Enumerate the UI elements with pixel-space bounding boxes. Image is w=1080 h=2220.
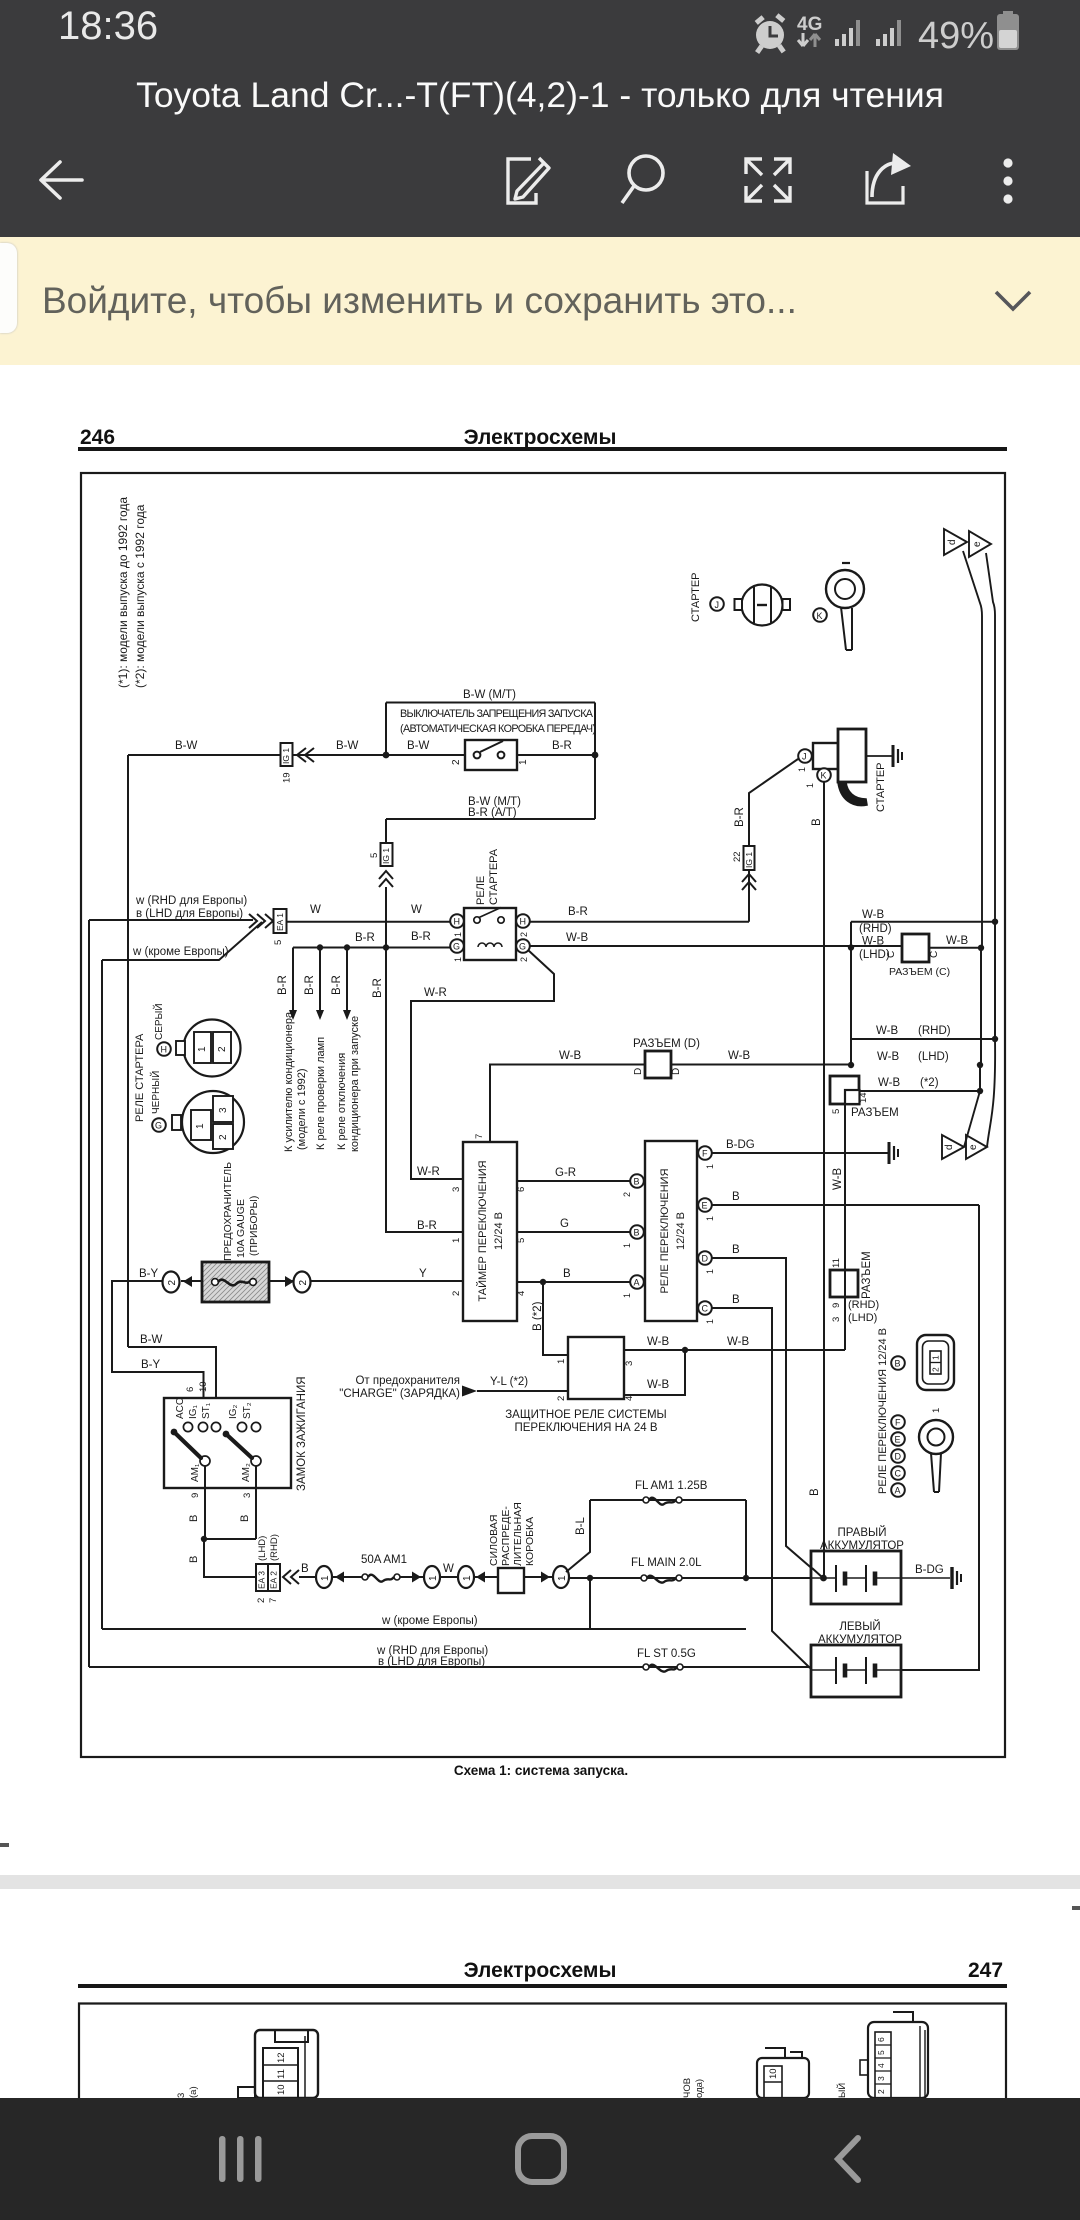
svg-text:B: B [809,1488,821,1496]
svg-text:2: 2 [622,1192,632,1197]
svg-text:9: 9 [831,1303,842,1308]
svg-text:G: G [453,942,460,952]
svg-text:5: 5 [876,2050,886,2055]
svg-text:B: B [732,1294,740,1306]
svg-text:1: 1 [453,932,463,937]
svg-text:(LHD): (LHD) [848,1312,877,1324]
svg-text:W-B: W-B [832,1168,844,1190]
svg-text:РАЗЪЕМ (D): РАЗЪЕМ (D) [633,1038,700,1050]
svg-text:B-Y: B-Y [141,1359,161,1371]
svg-text:ВЫКЛЮЧАТЕЛЬ ЗАПРЕЩЕНИЯ ЗАПУСКА: ВЫКЛЮЧАТЕЛЬ ЗАПРЕЩЕНИЯ ЗАПУСКА [400,708,594,720]
svg-text:1: 1 [705,1216,715,1221]
svg-text:J: J [715,600,720,610]
svg-text:1: 1 [622,1293,632,1298]
svg-text:B: B [634,1177,640,1187]
svg-text:B-R: B-R [568,906,588,918]
svg-text:ЫЙ: ЫЙ [836,2083,848,2098]
svg-text:FL AM1 1.25B: FL AM1 1.25B [635,1480,708,1492]
svg-text:B-W: B-W [336,740,359,752]
svg-text:B-R: B-R [304,975,316,995]
svg-text:B-W (M/T): B-W (M/T) [463,689,516,701]
svg-text:ST₂: ST₂ [242,1402,253,1419]
svg-text:B: B [895,1359,901,1369]
svg-text:2: 2 [298,1280,309,1286]
svg-text:3: 3 [831,1317,842,1322]
svg-text:11: 11 [276,2069,287,2079]
svg-text:5: 5 [369,853,380,858]
svg-text:K: K [821,771,827,781]
svg-text:СТАРТЕРА: СТАРТЕРА [488,848,500,905]
svg-text:IG 1: IG 1 [744,852,754,868]
svg-text:(RHD): (RHD) [859,923,892,935]
svg-text:6: 6 [185,1387,196,1392]
svg-text:d: d [944,1144,955,1150]
svg-text:От предохранителя: От предохранителя [355,1375,460,1387]
svg-text:12/24 В: 12/24 В [493,1212,505,1250]
svg-text:6: 6 [516,1187,527,1192]
svg-text:E: E [702,1201,708,1211]
svg-text:B-Y: B-Y [139,1268,159,1280]
svg-text:1: 1 [462,1575,473,1581]
svg-text:К усилителю кондиционера: К усилителю кондиционера [283,1011,295,1152]
svg-text:W-B: W-B [876,1025,898,1037]
svg-text:ST₁: ST₁ [201,1402,212,1419]
svg-text:К реле отключения: К реле отключения [336,1053,348,1150]
svg-text:РАСПРЕДЕ-: РАСПРЕДЕ- [500,1506,512,1566]
svg-text:в (LHD для Европы): в (LHD для Европы) [378,1656,485,1668]
svg-text:1: 1 [705,1164,715,1169]
svg-text:C: C [702,1304,709,1314]
svg-text:G: G [519,942,526,952]
svg-text:7: 7 [474,1134,485,1139]
svg-text:1: 1 [705,1319,715,1324]
svg-text:К реле проверки ламп: К реле проверки ламп [315,1037,327,1150]
svg-text:H: H [520,917,527,927]
svg-text:2: 2 [218,1134,229,1140]
svg-text:(RHD): (RHD) [918,1025,951,1037]
svg-text:B-L: B-L [575,1517,587,1536]
svg-text:W-B: W-B [559,1050,581,1062]
svg-text:W-B: W-B [877,1051,899,1063]
svg-text:10: 10 [276,2084,287,2095]
svg-text:(*1): модели выпуска до 1992 г: (*1): модели выпуска до 1992 года [116,497,130,688]
svg-text:4: 4 [516,1291,527,1296]
svg-text:B: B [732,1244,740,1256]
svg-text:ACC: ACC [175,1398,186,1419]
svg-text:10: 10 [198,1381,209,1392]
svg-text:D: D [702,1254,709,1264]
svg-text:B: B [732,1191,740,1203]
svg-text:EA 1: EA 1 [275,913,285,931]
svg-text:W-R: W-R [417,1166,440,1178]
svg-text:1: 1 [197,1046,208,1052]
svg-text:2: 2 [451,1291,462,1296]
svg-text:IG₂: IG₂ [228,1404,239,1419]
svg-text:1: 1 [622,1243,632,1248]
svg-text:ТАЙМЕР ПЕРЕКЛЮЧЕНИЯ: ТАЙМЕР ПЕРЕКЛЮЧЕНИЯ [476,1160,489,1301]
svg-text:W-B: W-B [878,1077,900,1089]
svg-text:A: A [634,1278,640,1288]
svg-text:1: 1 [428,1575,439,1581]
svg-text:W-B: W-B [566,932,588,944]
svg-text:B-W: B-W [407,740,430,752]
svg-text:РЕЛЕ ПЕРЕКЛЮЧЕНИЯ: РЕЛЕ ПЕРЕКЛЮЧЕНИЯ [659,1168,671,1293]
svg-text:СТАРТЕР: СТАРТЕР [690,572,702,622]
svg-text:6: 6 [876,2037,886,2042]
svg-text:ПРАВЫЙ: ПРАВЫЙ [838,1526,887,1539]
svg-text:СТАРТЕР: СТАРТЕР [875,762,887,812]
svg-text:B (*2): B (*2) [532,1301,544,1331]
svg-text:11: 11 [831,1258,842,1268]
svg-text:B: B [188,1556,200,1563]
svg-text:3: 3 [242,1493,253,1498]
svg-text:(LHD): (LHD) [859,949,890,961]
svg-text:ЛИТЕЛЬНАЯ: ЛИТЕЛЬНАЯ [512,1502,524,1566]
svg-text:КОРОБКА: КОРОБКА [524,1517,536,1566]
svg-text:2: 2 [451,759,462,765]
svg-text:W: W [411,904,422,916]
svg-text:3: 3 [451,1187,462,1192]
svg-text:AM₁: AM₁ [190,1463,201,1482]
svg-text:5: 5 [273,940,284,945]
svg-text:B-W: B-W [175,740,198,752]
svg-text:12/24 В: 12/24 В [675,1212,687,1250]
svg-text:e: e [968,1144,979,1150]
svg-text:14: 14 [858,1092,869,1103]
svg-text:(модели с 1992): (модели с 1992) [296,1068,308,1150]
svg-text:ЧОВ: ЧОВ [682,2078,693,2098]
svg-text:ЛЕВЫЙ: ЛЕВЫЙ [839,1620,880,1633]
svg-text:в (LHD для Европы): в (LHD для Европы) [136,908,243,920]
svg-text:W-B: W-B [946,935,968,947]
svg-text:1: 1 [931,1355,941,1360]
svg-text:D: D [895,1452,902,1462]
svg-text:РАЗЪЕМ (С): РАЗЪЕМ (С) [889,966,950,978]
svg-text:IG₁: IG₁ [188,1404,199,1419]
svg-text:W-B: W-B [728,1050,750,1062]
svg-text:ода): ода) [694,2079,705,2098]
svg-text:7: 7 [268,1598,279,1603]
svg-text:B-R: B-R [277,975,289,995]
svg-text:1: 1 [453,957,463,962]
svg-text:1: 1 [805,783,815,788]
svg-text:B-R: B-R [331,975,343,995]
svg-text:AM₂: AM₂ [241,1463,252,1482]
svg-text:5: 5 [831,1109,842,1114]
svg-text:C: C [929,951,940,958]
svg-text:G-R: G-R [555,1167,576,1179]
svg-text:W-B: W-B [647,1379,669,1391]
svg-text:2: 2 [167,1280,178,1286]
svg-text:(RHD): (RHD) [269,1534,280,1561]
svg-text:W-B: W-B [727,1336,749,1348]
svg-text:ЗАМОК ЗАЖИГАНИЯ: ЗАМОК ЗАЖИГАНИЯ [296,1376,308,1491]
svg-text:СИЛОВАЯ: СИЛОВАЯ [488,1515,500,1566]
svg-text:w (кроме Европы): w (кроме Европы) [132,946,229,958]
svg-text:ЧЕРНЫЙ: ЧЕРНЫЙ [149,1071,162,1114]
svg-text:FL MAIN 2.0L: FL MAIN 2.0L [631,1557,702,1569]
svg-text:K: K [817,611,823,621]
svg-text:СЕРЫЙ: СЕРЫЙ [152,1003,165,1040]
svg-text:H: H [454,917,461,927]
svg-text:B-R: B-R [372,978,384,998]
svg-text:W-B: W-B [862,936,884,948]
svg-text:B-R: B-R [734,807,746,827]
svg-text:B: B [563,1268,571,1280]
svg-text:B: B [301,1563,309,1575]
svg-text:2: 2 [217,1046,228,1052]
svg-text:2: 2 [256,1598,267,1603]
svg-text:B-R: B-R [355,932,375,944]
svg-text:d: d [947,539,958,545]
svg-text:"CHARGE" (ЗАРЯДКА): "CHARGE" (ЗАРЯДКА) [339,1388,460,1400]
svg-text:4G: 4G [797,14,822,35]
svg-text:C: C [895,1469,902,1479]
svg-text:B-DG: B-DG [915,1564,944,1576]
svg-text:3: 3 [624,1361,635,1366]
svg-text:w (RHD для Европы): w (RHD для Европы) [135,895,247,907]
svg-text:B: B [811,818,823,826]
svg-text:W: W [310,904,321,916]
svg-text:Схема 1: система запуска.: Схема 1: система запуска. [454,1763,628,1778]
svg-text:2: 2 [519,957,529,962]
svg-text:B: B [634,1228,640,1238]
svg-text:W-R: W-R [424,987,447,999]
svg-text:IG 1: IG 1 [281,748,291,764]
svg-text:e: e [972,541,983,547]
svg-text:19: 19 [282,772,293,783]
svg-text:РАЗЪЕМ: РАЗЪЕМ [851,1107,899,1119]
svg-text:(*2): (*2) [920,1077,939,1089]
svg-text:кондиционера при запуске: кондиционера при запуске [349,1016,361,1152]
svg-text:1: 1 [797,767,807,772]
svg-text:D: D [671,1068,682,1075]
svg-text:E: E [895,1435,901,1445]
svg-text:(АВТОМАТИЧЕСКАЯ КОРОБКА ПЕРЕДА: (АВТОМАТИЧЕСКАЯ КОРОБКА ПЕРЕДАЧ) [400,723,596,735]
svg-text:IG 1: IG 1 [381,848,391,864]
svg-text:(LHD): (LHD) [918,1051,949,1063]
svg-text:12: 12 [276,2052,287,2063]
svg-text:B: B [188,1515,200,1522]
svg-text:G: G [560,1218,569,1230]
svg-text:4: 4 [876,2063,886,2068]
svg-text:D: D [633,1068,644,1075]
svg-text:(а): (а) [188,2086,199,2098]
svg-text:2: 2 [519,932,529,937]
svg-text:W-B: W-B [862,909,884,921]
svg-text:B-W: B-W [140,1334,163,1346]
svg-text:22: 22 [732,851,743,862]
svg-text:1: 1 [451,1238,462,1243]
svg-text:G: G [155,1121,162,1131]
svg-text:W-B: W-B [647,1336,669,1348]
svg-text:50A AM1: 50A AM1 [361,1554,407,1566]
svg-text:(*2): модели выпуска с 1992 го: (*2): модели выпуска с 1992 года [133,504,147,688]
svg-text:9: 9 [190,1493,201,1498]
svg-text:B-R (A/T): B-R (A/T) [468,807,517,819]
svg-text:3: 3 [218,1107,229,1113]
svg-text:B-DG: B-DG [726,1139,755,1151]
svg-text:РЕЛЕ СТАРТЕРА: РЕЛЕ СТАРТЕРА [134,1033,146,1122]
svg-text:FL ST 0.5G: FL ST 0.5G [637,1648,696,1660]
svg-text:2: 2 [556,1396,567,1401]
svg-text:2: 2 [876,2089,886,2094]
svg-text:ПЕРЕКЛЮЧЕНИЯ НА 24 В: ПЕРЕКЛЮЧЕНИЯ НА 24 В [515,1422,658,1434]
svg-text:10: 10 [768,2068,779,2079]
svg-text:B-R: B-R [417,1220,437,1232]
svg-text:B: B [239,1515,251,1522]
svg-text:F: F [895,1418,901,1428]
svg-text:1: 1 [320,1575,331,1581]
svg-text:(LHD): (LHD) [257,1536,268,1561]
svg-text:3: 3 [876,2076,886,2081]
svg-text:10A GAUGE: 10A GAUGE [235,1199,247,1258]
svg-text:1: 1 [518,759,529,765]
svg-text:Y: Y [419,1268,427,1280]
svg-text:4: 4 [624,1396,635,1401]
svg-text:H: H [161,1045,168,1055]
svg-text:Y-L (*2): Y-L (*2) [490,1376,528,1388]
svg-text:ЗАЩИТНОЕ РЕЛЕ СИСТЕМЫ: ЗАЩИТНОЕ РЕЛЕ СИСТЕМЫ [505,1409,667,1421]
svg-text:РЕЛЕ: РЕЛЕ [475,876,487,905]
svg-text:1: 1 [195,1123,206,1129]
svg-text:1: 1 [705,1269,715,1274]
svg-text:49%: 49% [918,15,994,57]
svg-text:B-R: B-R [552,740,572,752]
svg-text:ПРЕДОХРАНИТЕЛЬ: ПРЕДОХРАНИТЕЛЬ [222,1162,234,1261]
svg-text:EA 2: EA 2 [269,1571,279,1589]
svg-text:J: J [802,752,807,762]
svg-text:2: 2 [931,1367,941,1372]
svg-text:(ПРИБОРЫ): (ПРИБОРЫ) [248,1196,260,1256]
svg-text:(RHD): (RHD) [848,1299,879,1311]
svg-text:1: 1 [557,1575,568,1581]
svg-text:1: 1 [931,1408,942,1413]
svg-text:РАЗЪЕМ: РАЗЪЕМ [861,1251,873,1299]
svg-text:W: W [443,1563,454,1575]
svg-text:EA 3: EA 3 [257,1571,267,1589]
svg-text:A: A [895,1486,901,1496]
svg-text:B-R: B-R [411,931,431,943]
svg-text:5: 5 [516,1238,527,1243]
svg-text:F: F [702,1149,708,1159]
svg-text:1: 1 [556,1359,567,1364]
svg-text:w (кроме Европы): w (кроме Европы) [381,1615,478,1627]
svg-text:РЕЛЕ ПЕРЕКЛЮЧЕНИЯ 12/24 В: РЕЛЕ ПЕРЕКЛЮЧЕНИЯ 12/24 В [877,1328,889,1494]
